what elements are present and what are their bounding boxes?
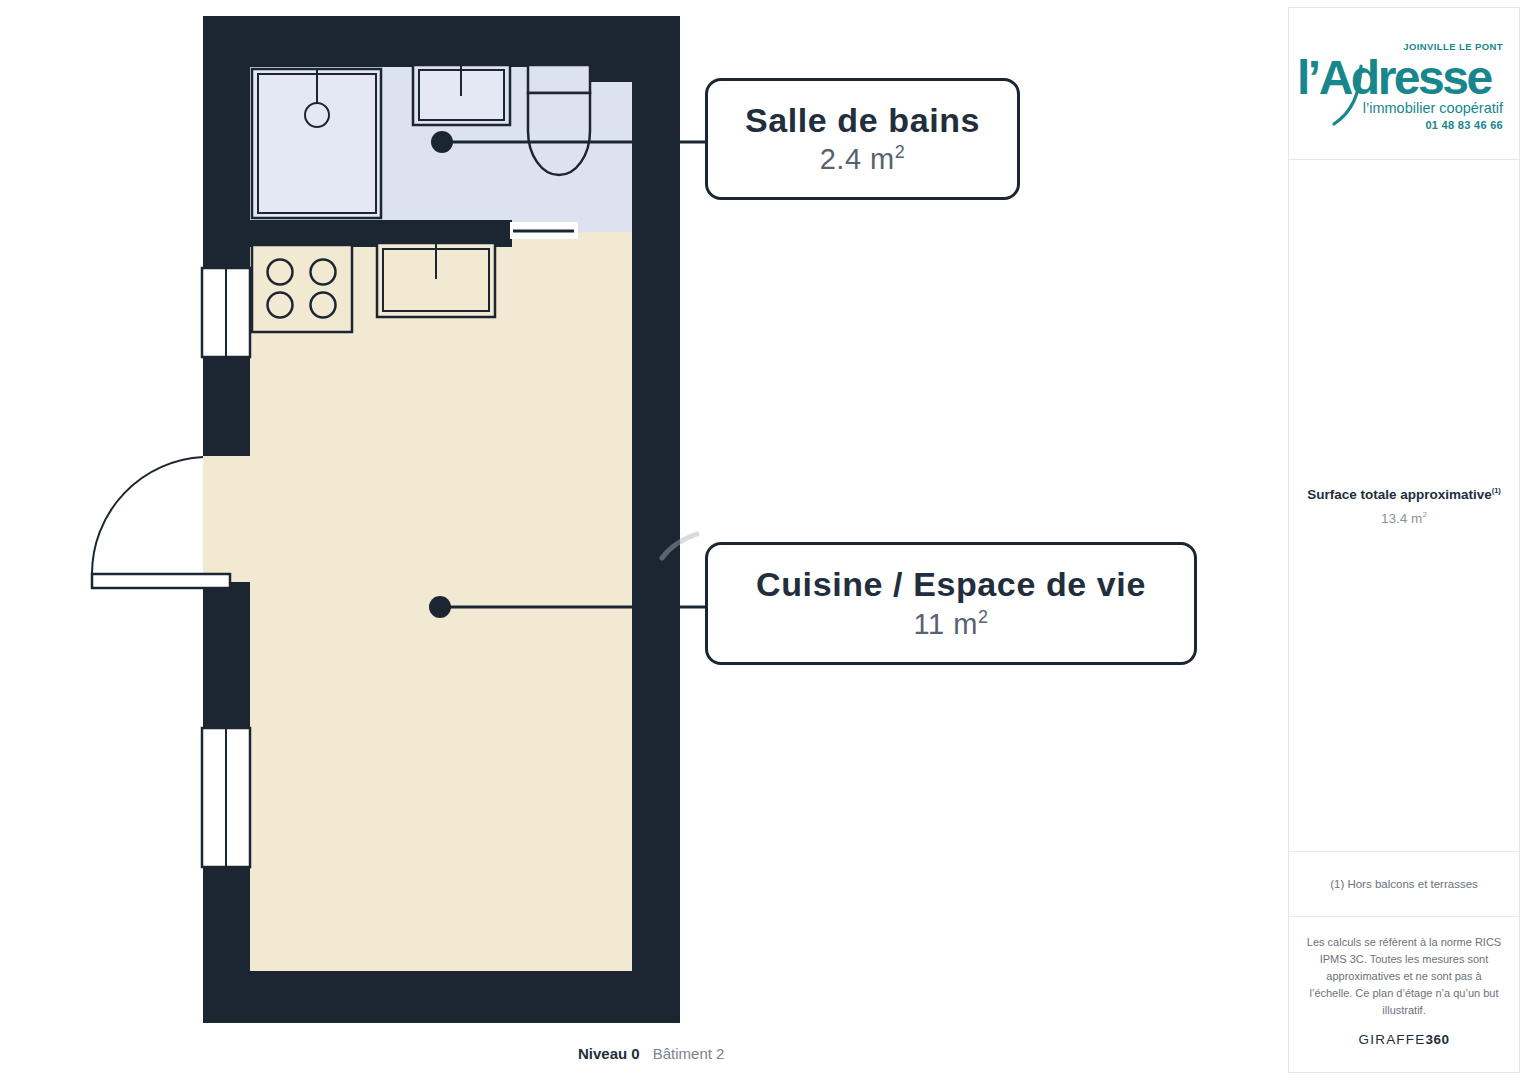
kitchen-callout: Cuisine / Espace de vie 11 m2 (705, 542, 1197, 665)
surface-summary: Surface totale approximative(1) 13.4 m2 (1289, 159, 1519, 851)
surface-value-exponent: 2 (1422, 510, 1427, 519)
entrance-door-swing (92, 457, 203, 574)
stove-burner (311, 293, 336, 318)
plan-footer: Niveau 0Bâtiment 2 (578, 1045, 724, 1062)
bathroom-area-value: 2.4 m (820, 143, 895, 175)
stove-burner (268, 260, 293, 285)
level-label: Niveau 0 (578, 1045, 640, 1062)
bathroom-callout: Salle de bains 2.4 m2 (705, 78, 1020, 200)
giraffe360-name: GIRAFFE (1359, 1032, 1426, 1047)
info-panel: JOINVILLE LE PONT l’Adresse l’immobilier… (1288, 7, 1520, 1073)
stove-burner (268, 293, 293, 318)
bathroom-callout-area: 2.4 m2 (820, 142, 906, 176)
kitchen-callout-title: Cuisine / Espace de vie (756, 566, 1146, 603)
surface-label-text: Surface totale approximative (1307, 486, 1492, 501)
disclaimer-text: Les calculs se réfèrent à la norme RICS … (1306, 934, 1502, 1019)
agency-phone: 01 48 83 46 66 (1289, 119, 1519, 131)
floorplan-page: Salle de bains 2.4 m2 Cuisine / Espace d… (0, 0, 1528, 1080)
surface-value: 13.4 m2 (1381, 510, 1427, 526)
agency-logo: JOINVILLE LE PONT l’Adresse l’immobilier… (1289, 8, 1519, 159)
wall-step (588, 67, 632, 82)
bathroom-callout-title: Salle de bains (745, 102, 980, 139)
disclaimer-section: Les calculs se réfèrent à la norme RICS … (1289, 916, 1519, 1072)
stove-burner (311, 260, 336, 285)
bathroom-area-exponent: 2 (895, 142, 906, 162)
giraffe360-suffix: 360 (1425, 1032, 1449, 1047)
surface-value-text: 13.4 m (1381, 511, 1422, 526)
toilet-bowl (528, 93, 590, 175)
kitchen-area-value: 11 m (914, 608, 978, 640)
bathroom-callout-dot (431, 131, 453, 153)
logo-swoosh-icon (1331, 60, 1371, 135)
stove (252, 245, 352, 332)
giraffe360-logo: GIRAFFE360 (1306, 1032, 1502, 1047)
footnote-section: (1) Hors balcons et terrasses (1289, 851, 1519, 916)
kitchen-callout-dot (429, 596, 451, 618)
entrance-door-leaf (92, 574, 230, 588)
kitchen-area-exponent: 2 (978, 607, 989, 627)
building-label: Bâtiment 2 (653, 1045, 725, 1062)
surface-label: Surface totale approximative(1) (1307, 486, 1501, 502)
kitchen-callout-area: 11 m2 (914, 607, 989, 641)
footnote-text: (1) Hors balcons et terrasses (1330, 878, 1478, 890)
toilet-cistern (528, 65, 590, 93)
surface-label-footnote: (1) (1492, 486, 1501, 495)
entrance-opening (203, 456, 250, 582)
shower-drain (305, 103, 329, 127)
